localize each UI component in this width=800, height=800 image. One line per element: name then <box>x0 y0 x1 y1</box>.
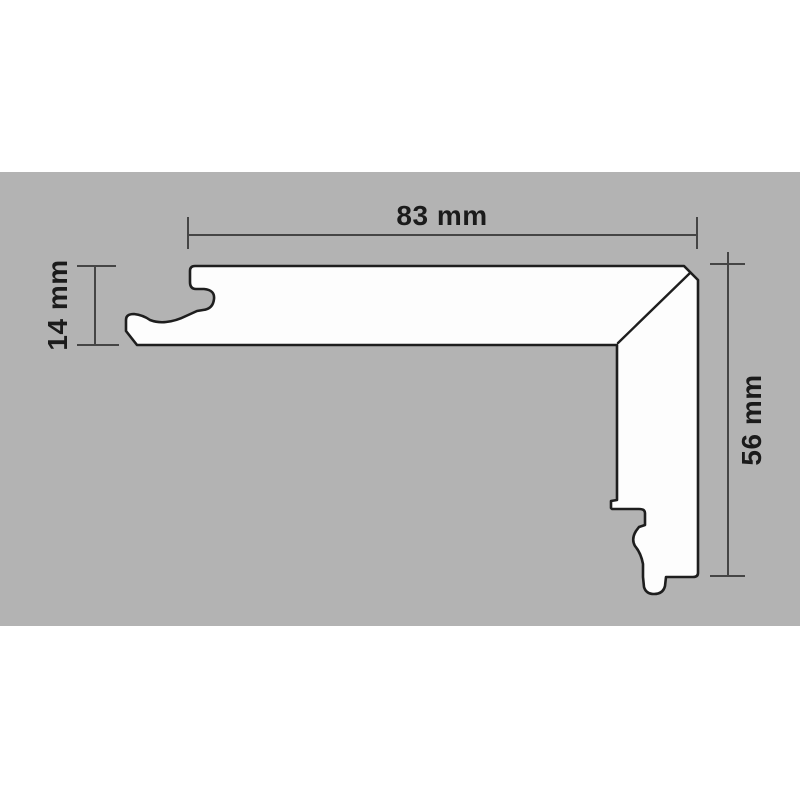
width-dimension-label: 83 mm <box>396 200 487 231</box>
page: 83 mm 14 mm 56 mm <box>0 0 800 800</box>
height-dimension-label: 56 mm <box>736 374 767 465</box>
thickness-dimension-label: 14 mm <box>42 259 73 350</box>
technical-drawing: 83 mm 14 mm 56 mm <box>0 0 800 800</box>
